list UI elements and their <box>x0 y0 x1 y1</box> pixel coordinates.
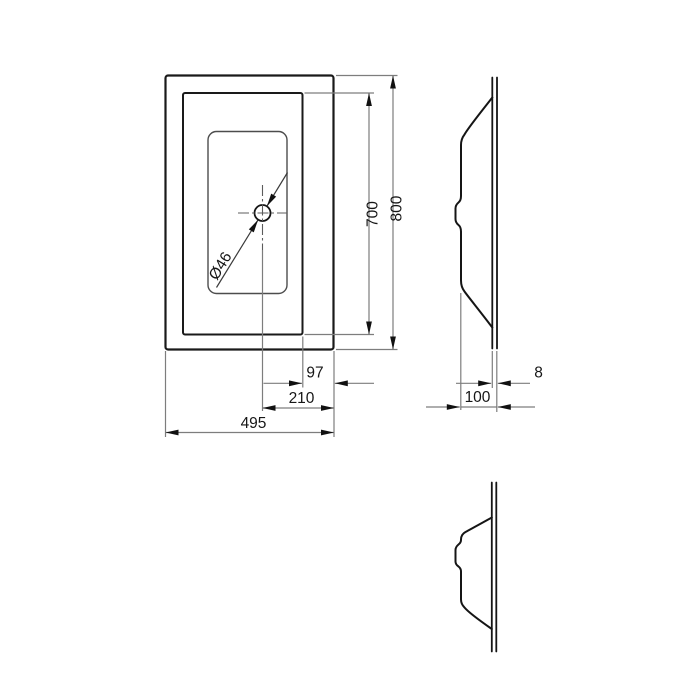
side-view-long <box>456 78 498 349</box>
side-view-short <box>456 483 497 652</box>
technical-drawing-shower-tray: Ø46 700 800 97 210 495 <box>0 0 700 700</box>
dim-label-8: 8 <box>534 365 543 382</box>
dim-label-inner-height: 700 <box>365 201 382 227</box>
dim-label-495: 495 <box>241 415 267 432</box>
end-profile-curve <box>456 518 492 630</box>
dim-label-210: 210 <box>289 390 315 407</box>
dim-label-100: 100 <box>465 389 491 406</box>
drawing-sheet: Ø46 700 800 97 210 495 <box>0 0 700 700</box>
dim-label-outer-height: 800 <box>389 195 406 221</box>
tray-outer-rim <box>166 76 334 350</box>
front-view: Ø46 <box>166 76 334 350</box>
dim-label-97: 97 <box>306 365 323 382</box>
